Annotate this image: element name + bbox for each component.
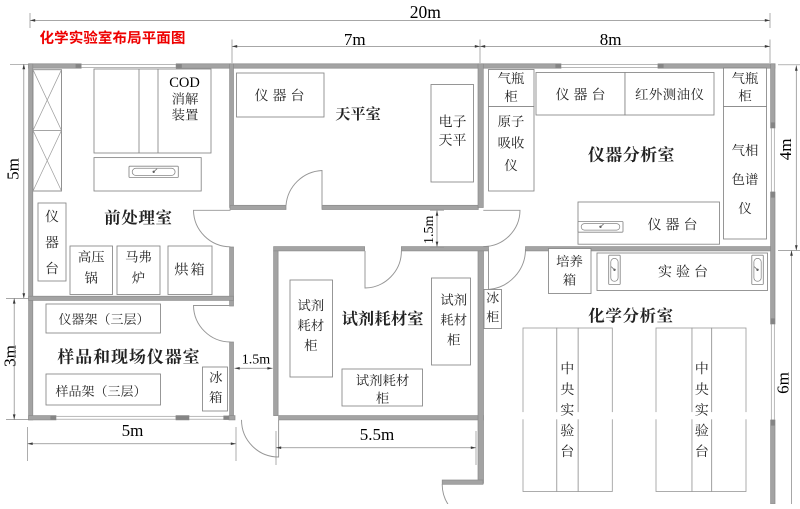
- svg-text:1.5m: 1.5m: [242, 353, 271, 368]
- svg-text:6m: 6m: [774, 372, 793, 394]
- svg-text:4m: 4m: [776, 139, 795, 161]
- svg-text:8m: 8m: [600, 30, 622, 49]
- svg-text:3m: 3m: [1, 345, 20, 367]
- svg-text:5m: 5m: [122, 421, 144, 440]
- svg-text:5.5m: 5.5m: [360, 425, 394, 444]
- svg-text:1.5m: 1.5m: [422, 215, 437, 244]
- svg-text:COD: COD: [169, 75, 200, 91]
- svg-text:5m: 5m: [4, 158, 23, 180]
- svg-text:20m: 20m: [410, 2, 442, 22]
